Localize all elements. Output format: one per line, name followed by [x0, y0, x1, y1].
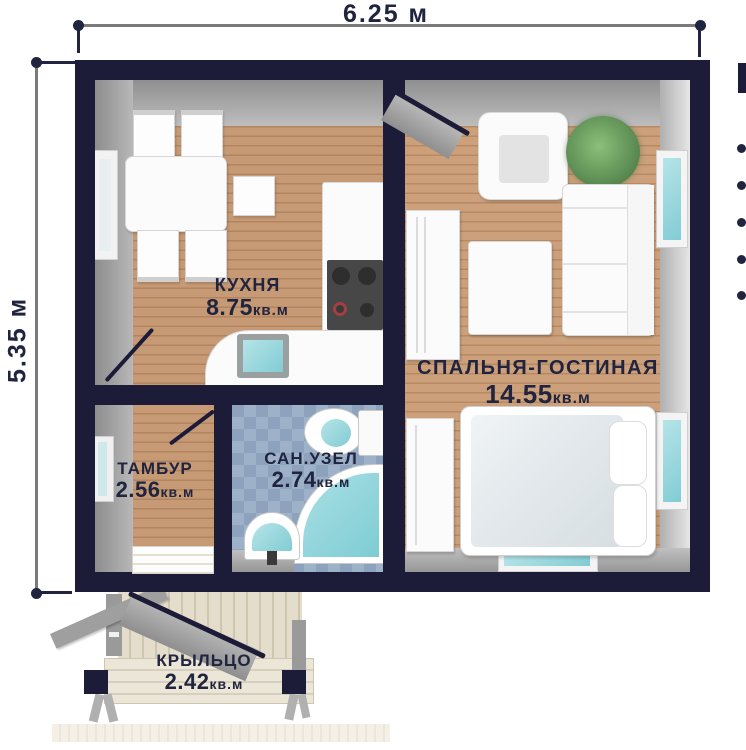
bullet-dot	[737, 255, 746, 264]
living-label: СПАЛЬНЯ-ГОСТИНАЯ 14.55кв.м	[408, 358, 668, 408]
top-dimension-line	[78, 24, 700, 27]
bullet-dot	[737, 291, 746, 300]
kitchen-label: КУХНЯ 8.75кв.м	[160, 276, 335, 320]
living-name: СПАЛЬНЯ-ГОСТИНАЯ	[408, 358, 668, 380]
clipped-text-fragment	[738, 63, 746, 93]
living-area-unit: кв.м	[553, 390, 591, 407]
top-dimension-tick-left	[77, 27, 80, 53]
vestibule-area-unit: кв.м	[160, 484, 194, 500]
kitchen-name: КУХНЯ	[160, 276, 335, 295]
porch-leg	[89, 693, 105, 722]
interior-wall-vertical	[383, 80, 405, 572]
top-dimension-tick-right	[698, 27, 701, 57]
bullet-dot	[737, 144, 746, 153]
porch-post-right	[292, 620, 306, 670]
height-dimension-label: 5.35 м	[2, 270, 34, 410]
vestibule-label: ТАМБУР 2.56кв.м	[95, 460, 215, 502]
kitchen-area-unit: кв.м	[253, 302, 289, 319]
interior-wall-horizontal	[95, 385, 405, 405]
bathroom-area: 2.74	[272, 467, 317, 492]
bullet-dot	[737, 218, 746, 227]
porch-label: КРЫЛЬЦО 2.42кв.м	[129, 652, 279, 694]
ground-strip	[52, 724, 390, 742]
entrance-threshold	[132, 546, 214, 574]
porch-post-notch	[109, 632, 119, 637]
left-dimension-tick-top	[38, 61, 80, 64]
left-dimension-line	[35, 62, 38, 593]
kitchen-area: 8.75	[206, 294, 253, 320]
floor-plan-canvas: 6.25 м 5.35 м	[0, 0, 746, 750]
bathroom-name: САН.УЗЕЛ	[240, 450, 382, 468]
living-area: 14.55	[485, 379, 553, 409]
interior-wall-bathroom	[214, 405, 232, 572]
porch-name: КРЫЛЬЦО	[129, 652, 279, 670]
porch-area-unit: кв.м	[209, 676, 243, 692]
bullet-dot	[737, 181, 746, 190]
porch-post-cap-left	[84, 670, 108, 694]
porch-post-cap-right	[282, 670, 306, 694]
vestibule-name: ТАМБУР	[95, 460, 215, 478]
porch-area: 2.42	[165, 669, 210, 694]
bathroom-label: САН.УЗЕЛ 2.74кв.м	[240, 450, 382, 492]
left-dimension-tick-bottom	[38, 591, 72, 594]
bathroom-area-unit: кв.м	[316, 474, 350, 490]
vestibule-area: 2.56	[116, 477, 161, 502]
